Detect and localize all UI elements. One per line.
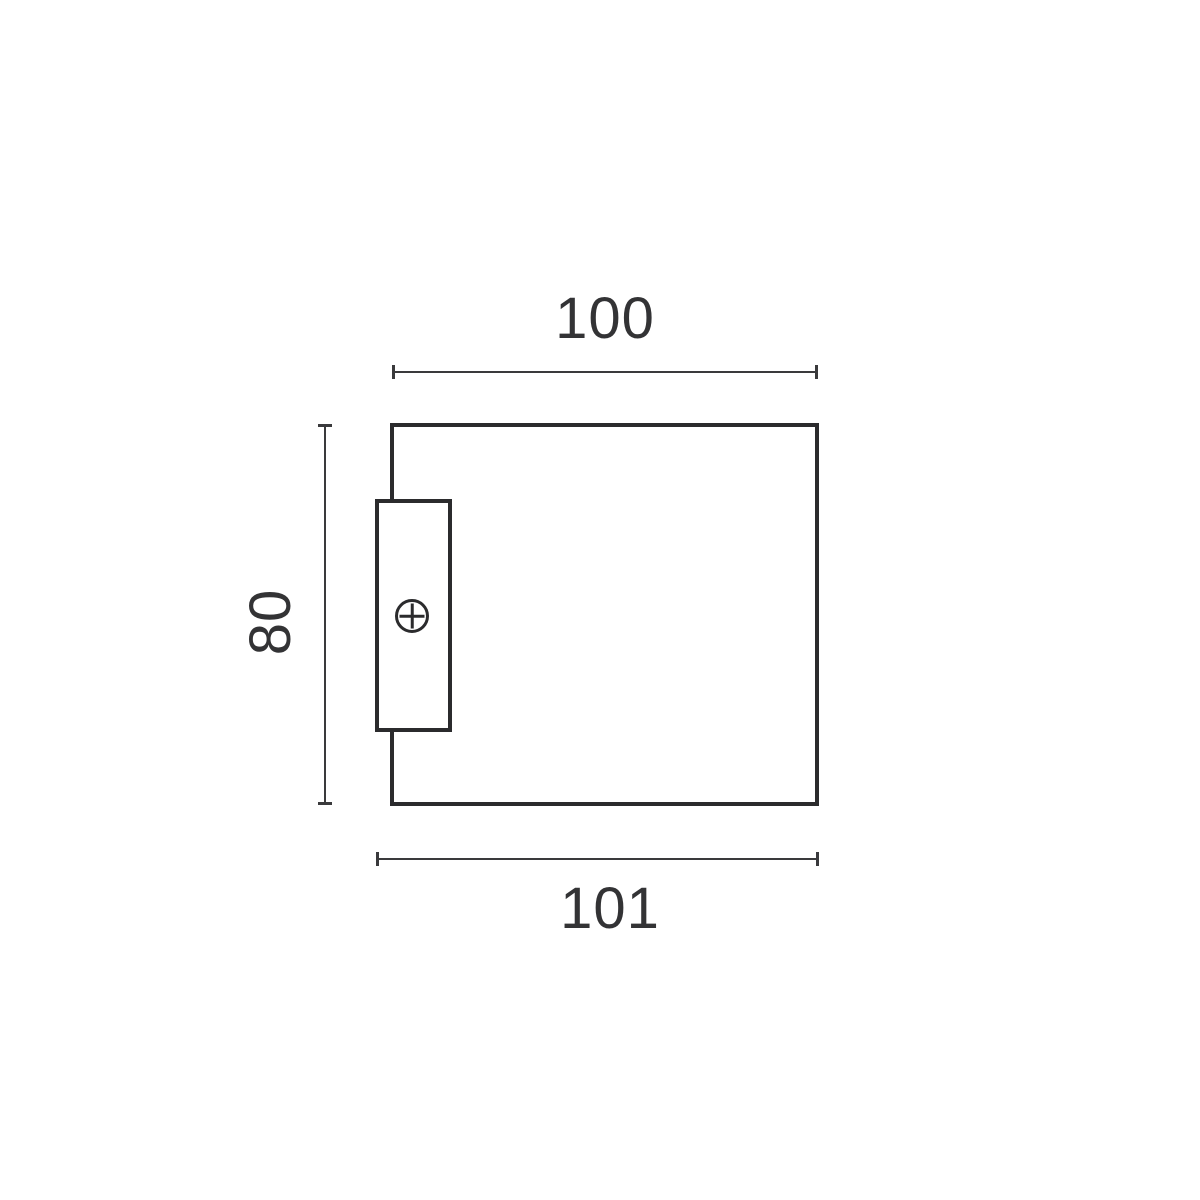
- drawing-canvas: 100 80 101: [0, 0, 1200, 1200]
- screw-plus-circle-icon: [395, 599, 429, 633]
- fixture-body-outline: [390, 423, 819, 806]
- top-dimension-line: [393, 371, 817, 373]
- left-dimension-tick-bottom: [318, 802, 332, 805]
- left-dimension-tick-top: [318, 424, 332, 427]
- left-dimension-line: [324, 425, 326, 804]
- bottom-dimension-tick-right: [816, 852, 819, 866]
- bottom-dimension-label: 101: [390, 874, 830, 944]
- screw-cross-vertical: [411, 604, 414, 629]
- bottom-dimension-tick-left: [376, 852, 379, 866]
- top-dimension-label: 100: [393, 284, 817, 354]
- top-dimension-tick-right: [815, 365, 818, 379]
- top-dimension-tick-left: [392, 365, 395, 379]
- left-dimension-label: 80: [236, 542, 308, 702]
- bottom-dimension-line: [378, 858, 818, 860]
